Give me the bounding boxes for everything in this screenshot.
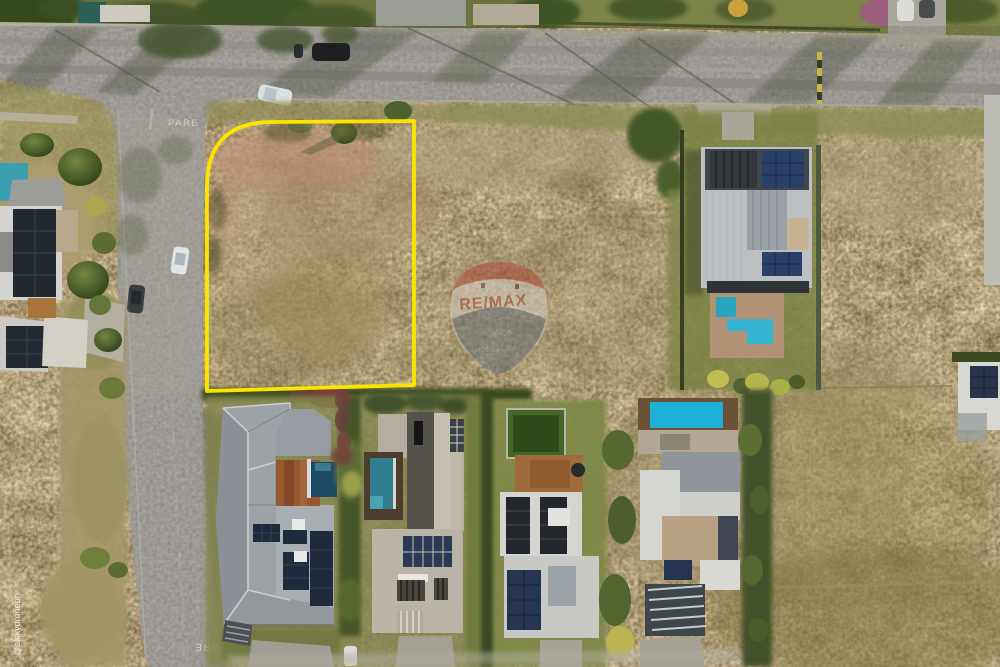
svg-text:ALIANÇA: ALIANÇA — [480, 327, 513, 338]
svg-text:PARE: PARE — [168, 118, 199, 129]
svg-text:@alskydronebr: @alskydronebr — [12, 595, 22, 656]
